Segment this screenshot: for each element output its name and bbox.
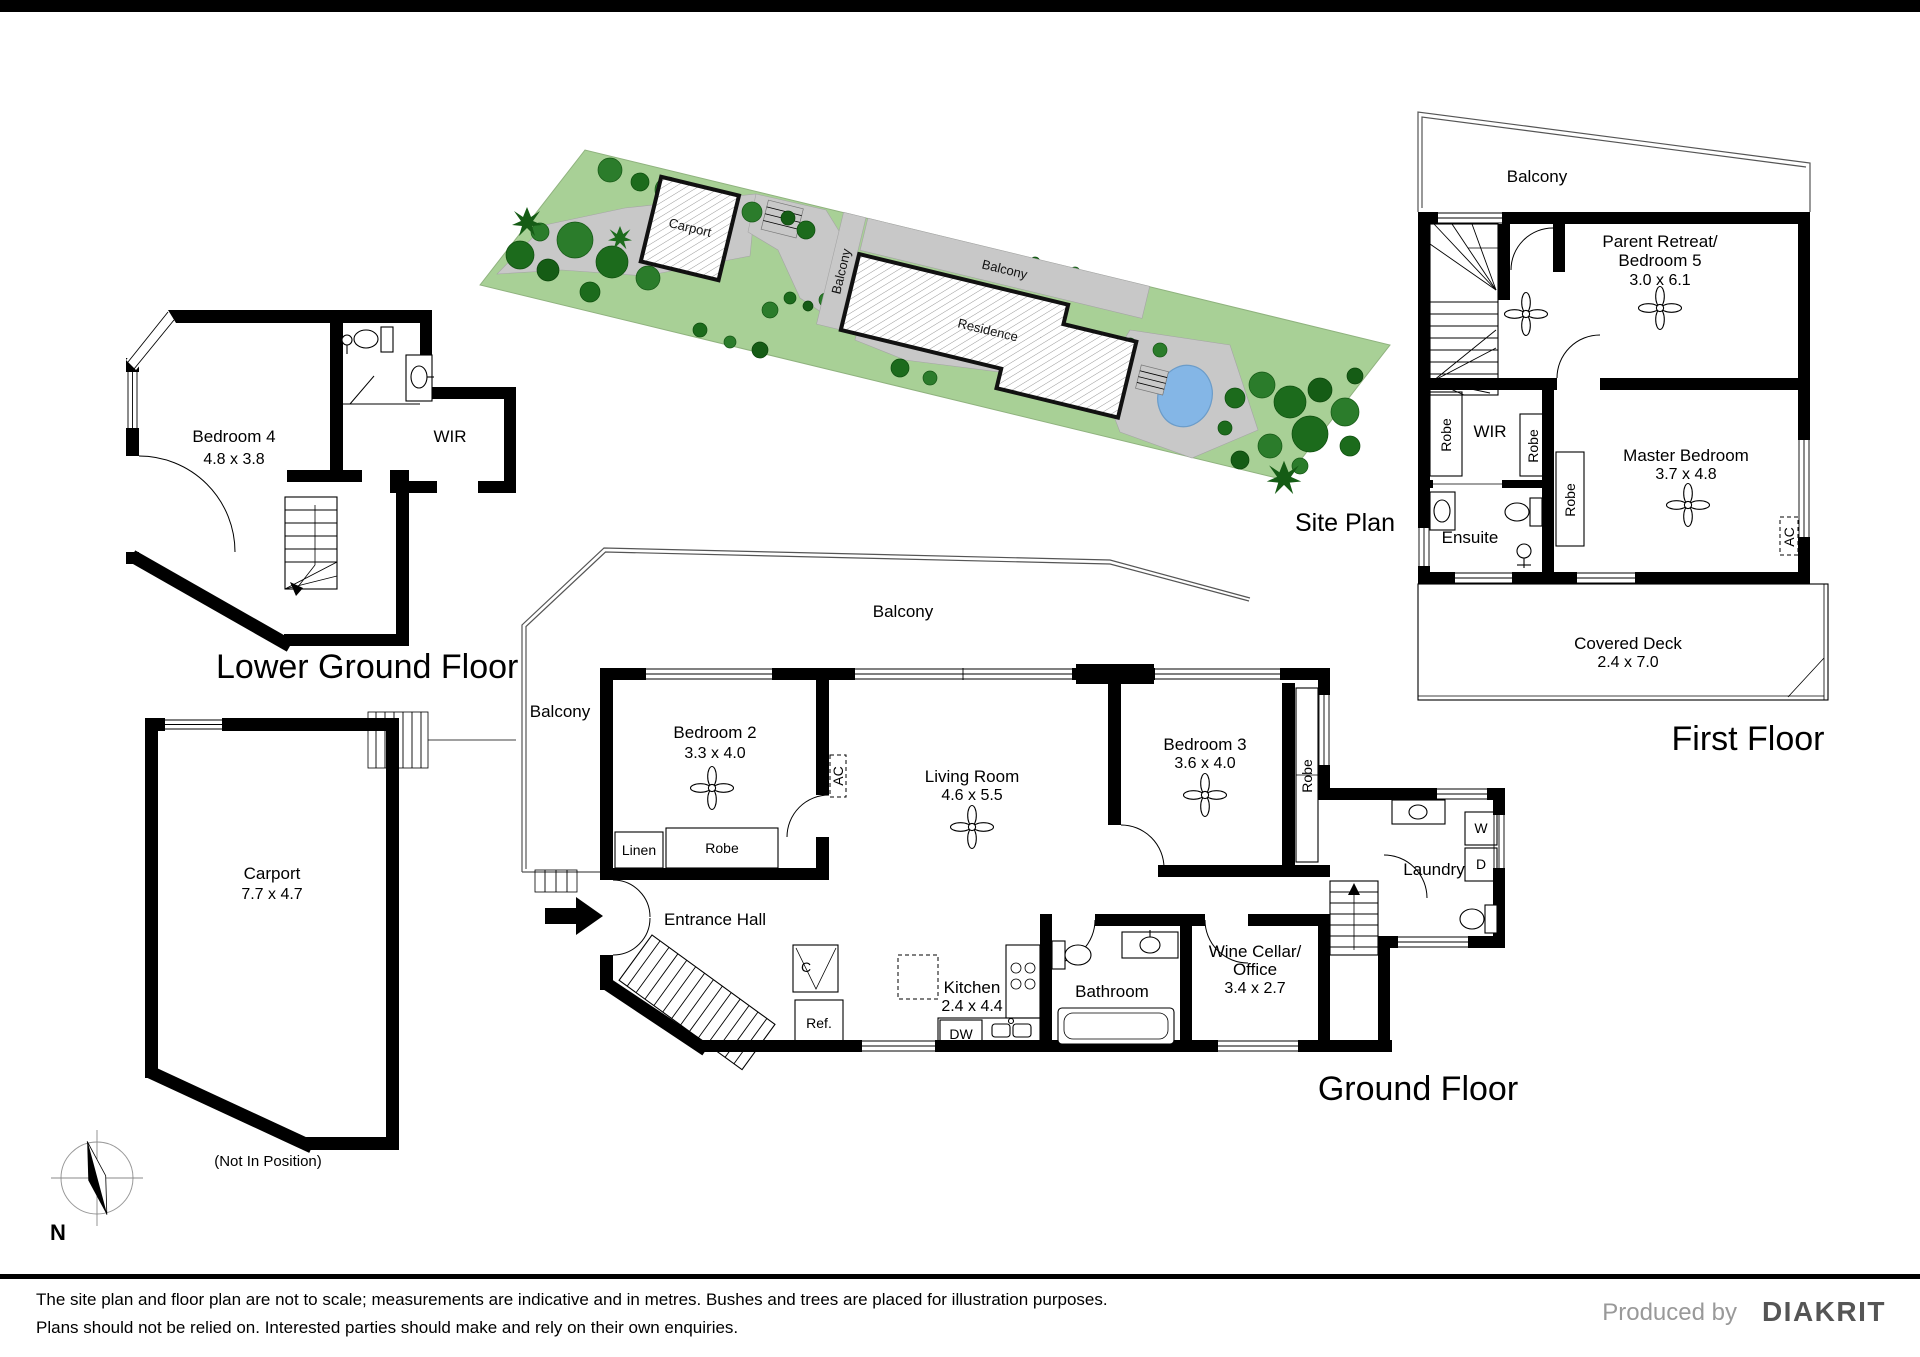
floorplan-canvas: Carport Balcony Balcony Residence Site P…	[0, 0, 1920, 1357]
lg-bedroom4-dims: 4.8 x 3.8	[203, 451, 264, 468]
gf-entrance-label: Entrance Hall	[664, 910, 766, 929]
ff-ac-label: AC	[1781, 527, 1797, 546]
top-bar	[0, 0, 1920, 12]
ff-robe2-label: Robe	[1525, 429, 1541, 463]
gf-bedroom3-dims: 3.6 x 4.0	[1174, 755, 1235, 772]
lg-walls	[126, 310, 516, 646]
site-plan: Carport Balcony Balcony Residence Site P…	[480, 150, 1395, 537]
cp-dims: 7.7 x 4.7	[241, 886, 302, 903]
cp-note: (Not In Position)	[214, 1153, 322, 1170]
toilet-icon	[381, 327, 393, 352]
ff-robe1-label: Robe	[1438, 418, 1454, 452]
gf-robe-bed3-label: Robe	[1299, 759, 1315, 793]
floorplan-sheet: Carport Balcony Balcony Residence Site P…	[0, 0, 1920, 1357]
cp-opening	[165, 720, 222, 729]
ff-balcony-inner	[1422, 117, 1806, 208]
gf-bedroom2-label: Bedroom 2	[673, 723, 756, 742]
lg-bedroom-door	[139, 456, 235, 552]
gf-bedroom3-label: Bedroom 3	[1163, 735, 1246, 754]
gf-winecellar-dims: 3.4 x 2.7	[1224, 980, 1285, 997]
gf-winecellar-label1: Wine Cellar/	[1209, 942, 1302, 961]
ff-deck-dims: 2.4 x 7.0	[1597, 654, 1658, 671]
disclaimer-line2: Plans should not be relied on. Intereste…	[36, 1318, 738, 1337]
gf-ref-label: Ref.	[806, 1015, 832, 1031]
gf-bathroom-label: Bathroom	[1075, 982, 1149, 1001]
stair-arrow-icon	[1348, 883, 1360, 895]
ff-deck-label: Covered Deck	[1574, 634, 1682, 653]
compass: N	[50, 1130, 143, 1245]
cp-walls	[145, 718, 399, 1150]
lower-ground-floor-plan: Bedroom 4 4.8 x 3.8 WIR Lower Ground Flo…	[126, 310, 518, 686]
ground-floor-plan: Balcony Balcony Bedroom 2 3.3 x 4.0 Livi…	[368, 548, 1518, 1108]
gf-living-dims: 4.6 x 5.5	[941, 787, 1002, 804]
gf-linen-label: Linen	[622, 842, 656, 858]
shower-icon	[1517, 544, 1531, 558]
ceiling-fan-icon	[1505, 293, 1548, 336]
entry-arrow-icon	[545, 897, 603, 935]
toilet-icon	[1485, 905, 1497, 933]
gf-balcony-left-label: Balcony	[530, 702, 591, 721]
ff-balcony-label: Balcony	[1507, 167, 1568, 186]
brand-logo: DIAKRIT	[1762, 1296, 1886, 1327]
produced-by-label: Produced by	[1602, 1299, 1737, 1326]
ff-master-dims: 3.7 x 4.8	[1655, 466, 1716, 483]
ff-retreat-label2: Bedroom 5	[1618, 251, 1701, 270]
site-carport: Carport	[641, 177, 739, 280]
gf-laundry-label: Laundry	[1403, 860, 1465, 879]
ceiling-fan-icon	[691, 767, 734, 810]
ff-robe3-label: Robe	[1562, 483, 1578, 517]
first-floor-title: First Floor	[1672, 720, 1825, 758]
ff-wir-label: WIR	[1473, 422, 1506, 441]
bottom-bar	[0, 1274, 1920, 1279]
gf-winecellar-label2: Office	[1233, 960, 1277, 979]
cp-label: Carport	[244, 864, 301, 883]
ff-retreat-dims: 3.0 x 6.1	[1629, 272, 1690, 289]
ff-stairs	[1430, 224, 1510, 395]
first-floor-plan: Balcony Parent Retreat/ Bedroom 5 3.0 x …	[1418, 112, 1828, 758]
ceiling-fan-icon	[1667, 484, 1710, 527]
shower-icon	[342, 335, 352, 345]
lg-bedroom4-label: Bedroom 4	[192, 427, 275, 446]
lower-ground-title: Lower Ground Floor	[216, 648, 518, 686]
gf-d-label: D	[1476, 856, 1486, 872]
site-plan-title: Site Plan	[1295, 509, 1395, 537]
gf-bedroom2-dims: 3.3 x 4.0	[684, 745, 745, 762]
gf-kitchen-label: Kitchen	[944, 978, 1001, 997]
toilet-icon	[1052, 941, 1065, 969]
ff-retreat-label1: Parent Retreat/	[1602, 232, 1718, 251]
gf-c-label: C	[801, 959, 811, 975]
gf-ac-label: AC	[830, 766, 846, 785]
carport-plan: Carport 7.7 x 4.7 (Not In Position)	[145, 718, 399, 1170]
gf-balcony-top-label: Balcony	[873, 602, 934, 621]
gf-living-label: Living Room	[925, 767, 1020, 786]
footer: The site plan and floor plan are not to …	[36, 1290, 1886, 1337]
gf-w-label: W	[1474, 820, 1488, 836]
gf-robe-bed2-label: Robe	[705, 840, 739, 856]
disclaimer-line1: The site plan and floor plan are not to …	[36, 1290, 1108, 1309]
ff-master-label: Master Bedroom	[1623, 446, 1749, 465]
compass-north-label: N	[50, 1220, 66, 1245]
toilet-icon	[1530, 498, 1542, 526]
ff-doors	[1433, 228, 1600, 484]
stove-icon	[1011, 963, 1021, 973]
gf-stairs-up	[1330, 881, 1378, 955]
ceiling-fan-icon	[1184, 774, 1227, 817]
gf-kitchen-dims: 2.4 x 4.4	[941, 998, 1002, 1015]
lg-stairs	[285, 497, 337, 596]
gf-dw-label: DW	[949, 1026, 973, 1042]
lg-wir-label: WIR	[433, 427, 466, 446]
ceiling-fan-icon	[951, 806, 994, 849]
ff-ensuite-label: Ensuite	[1442, 528, 1499, 547]
sink-icon	[992, 1024, 1010, 1037]
ground-title: Ground Floor	[1318, 1070, 1518, 1108]
ceiling-fan-icon	[1639, 287, 1682, 330]
ff-balcony-outline	[1418, 112, 1810, 212]
